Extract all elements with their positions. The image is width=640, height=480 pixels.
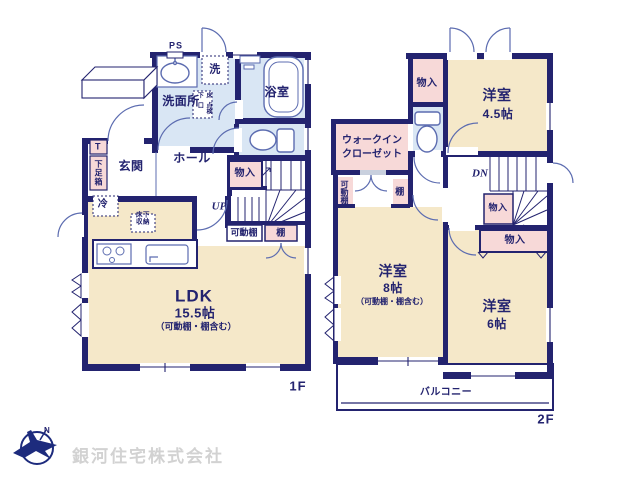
kitchen-sink-icon xyxy=(146,245,188,264)
label-underfloor-2: 収納 xyxy=(136,219,150,226)
label-closet-top-2f: 物入 xyxy=(417,79,438,89)
label-inspection-hatch: 床下 点検口 xyxy=(194,92,212,118)
floorplan-drawing xyxy=(0,0,640,480)
label-wic-2: クローゼット xyxy=(342,150,402,160)
label-closet-wide-2f: 物入 xyxy=(505,236,526,246)
porch-canopy xyxy=(82,67,157,98)
label-hall: ホール xyxy=(173,152,211,164)
label-shelf-2f: 棚 xyxy=(395,188,405,197)
label-entrance: 玄関 xyxy=(118,160,143,172)
label-up: UP xyxy=(212,202,227,213)
floorplan-page: PS 洗 洗面所 床下 点検口 浴室 玄関 T 下足箱 ホール 物入 UP 可動… xyxy=(0,0,640,480)
label-shoe-box: 下足箱 xyxy=(94,160,102,187)
label-floor-2f: 2F xyxy=(537,413,554,426)
label-ps: PS xyxy=(169,42,183,51)
label-room8-note: （可動棚・棚含む） xyxy=(356,298,428,306)
label-dn: DN xyxy=(472,169,488,180)
label-room6-size: 6帖 xyxy=(487,318,507,330)
label-movable-shelf-1f: 可動棚 xyxy=(230,229,257,238)
company-logo-icon xyxy=(13,430,57,464)
label-laundry: 洗 xyxy=(209,65,221,76)
vanity-sink-icon xyxy=(157,56,197,87)
label-fridge: 冷 xyxy=(98,200,109,210)
label-bathroom: 浴室 xyxy=(264,86,289,98)
label-room45-size: 4.5帖 xyxy=(483,108,514,120)
label-ldk-size: 15.5帖 xyxy=(175,307,216,320)
kitchen-counter xyxy=(93,240,197,268)
wic-sliding-door xyxy=(360,170,386,175)
label-movable-shelf-2f: 可動棚 xyxy=(340,180,348,204)
logo-compass-n: N xyxy=(44,426,50,435)
label-room8: 洋室 xyxy=(379,264,408,278)
label-closet-stair-2f: 物入 xyxy=(488,204,507,213)
label-closet-1f: 物入 xyxy=(235,169,256,179)
label-floor-1f: 1F xyxy=(289,380,306,393)
ps-shaft xyxy=(167,52,183,58)
label-room8-size: 8帖 xyxy=(383,282,403,294)
label-room45: 洋室 xyxy=(483,88,512,102)
company-name: 銀河住宅株式会社 xyxy=(72,442,224,467)
label-wic-1: ウォークイン xyxy=(342,136,402,146)
label-ldk-note: （可動棚・棚含む） xyxy=(155,323,236,332)
label-balcony: バルコニー xyxy=(420,388,472,398)
label-shelf-1f: 棚 xyxy=(276,229,286,238)
label-shoe-t: T xyxy=(95,143,101,152)
label-room6: 洋室 xyxy=(483,299,512,313)
label-ldk: LDK xyxy=(175,288,213,305)
